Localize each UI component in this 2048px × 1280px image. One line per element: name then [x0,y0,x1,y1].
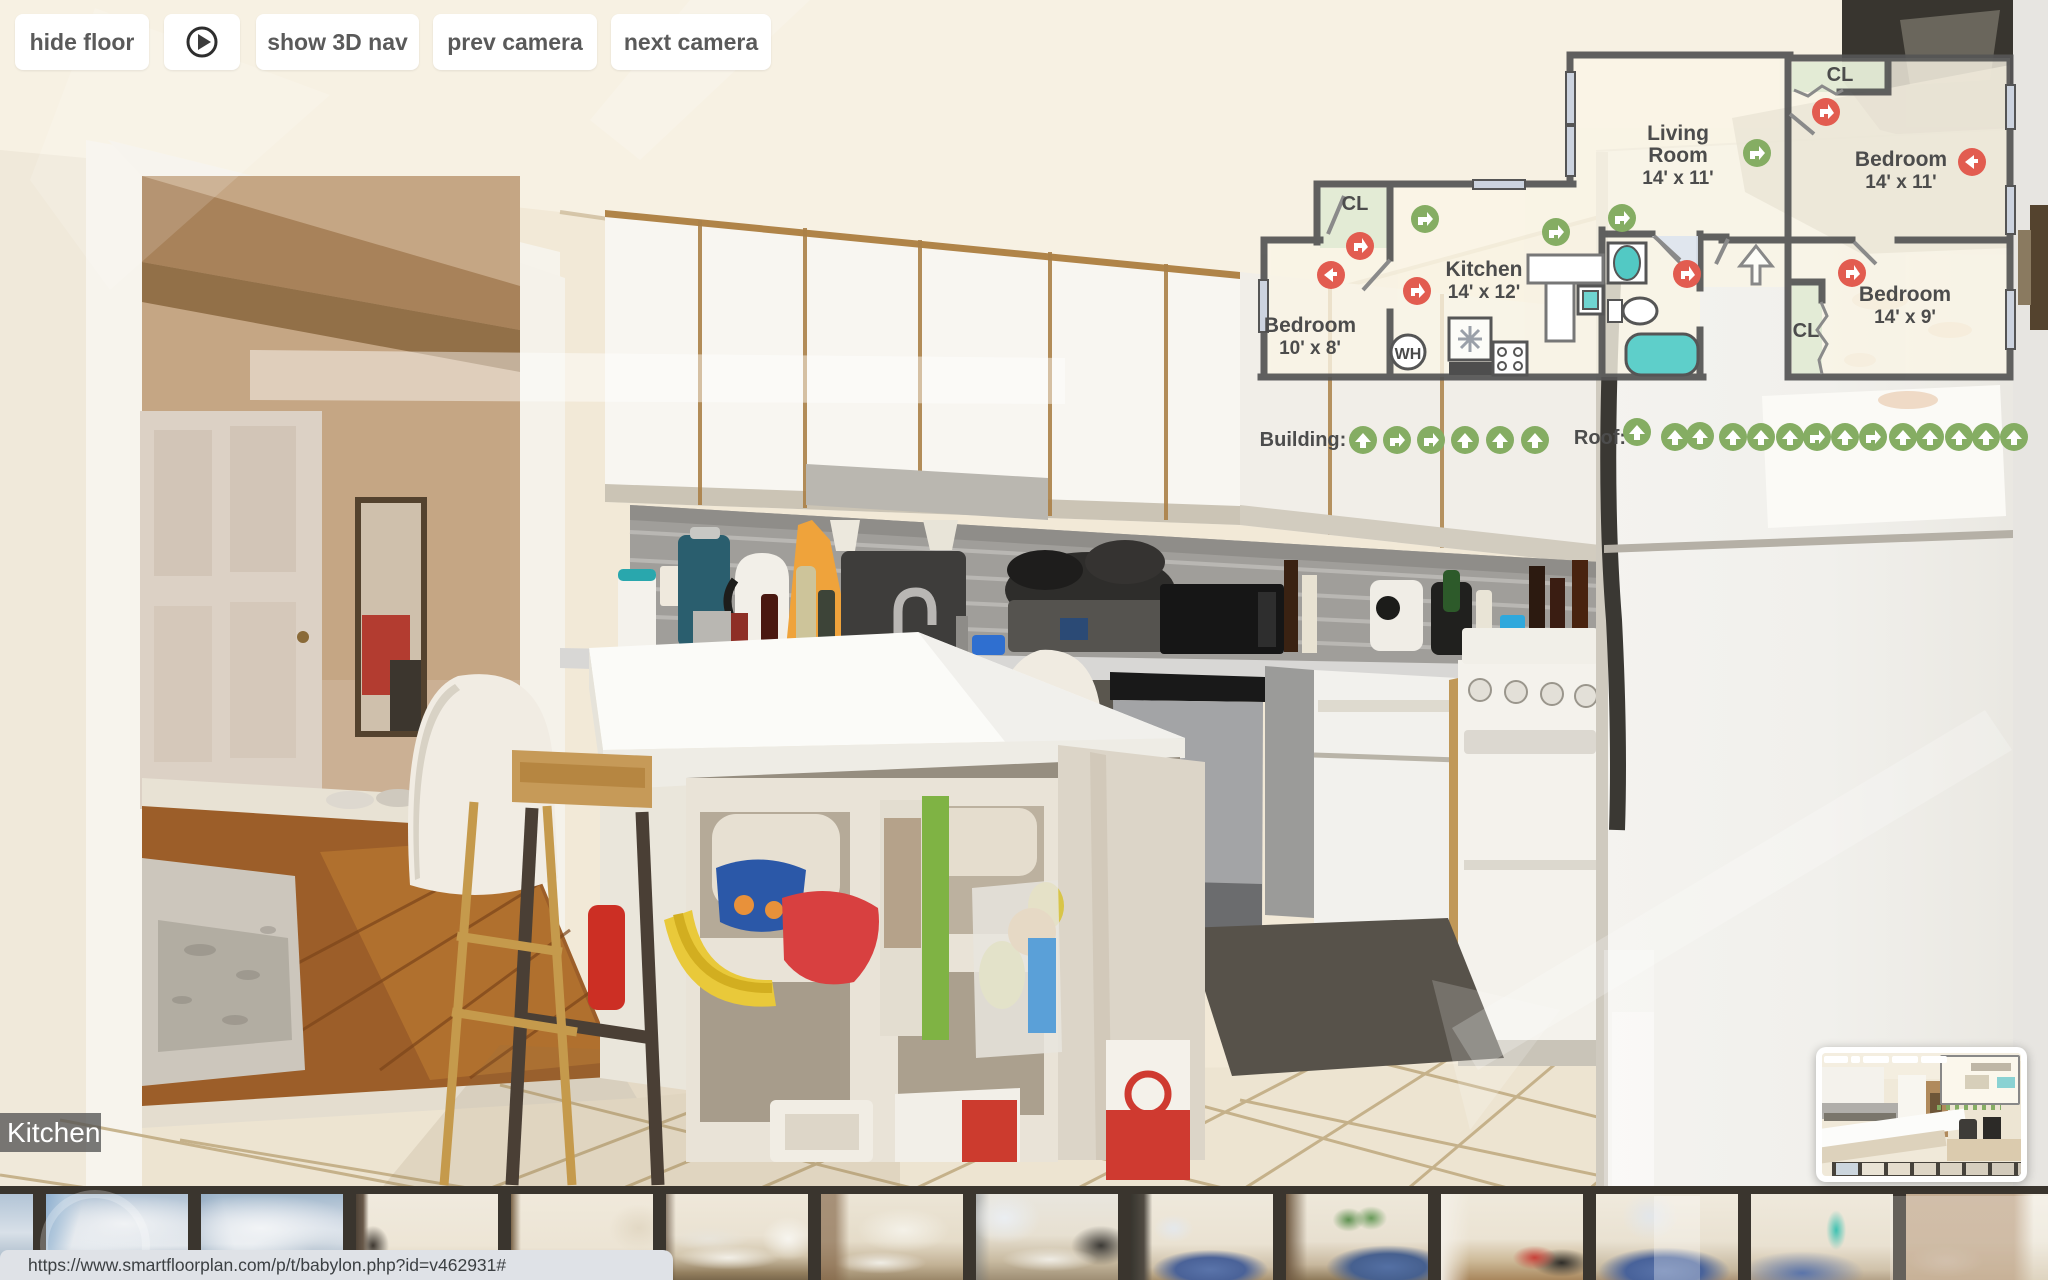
svg-text:CL: CL [1342,193,1369,215]
svg-text:Building:: Building: [1260,429,1347,451]
svg-text:14' x 12': 14' x 12' [1448,282,1520,303]
svg-text:Living: Living [1647,122,1709,145]
svg-text:Kitchen: Kitchen [1445,258,1522,281]
svg-text:10' x 8': 10' x 8' [1279,338,1341,359]
svg-text:14' x 11': 14' x 11' [1865,172,1936,193]
svg-text:Roof:: Roof: [1574,427,1626,449]
svg-text:14' x 9': 14' x 9' [1874,307,1936,328]
svg-text:Bedroom: Bedroom [1855,148,1947,171]
svg-text:Bedroom: Bedroom [1859,283,1951,306]
svg-text:Room: Room [1648,144,1708,167]
svg-text:CL: CL [1827,64,1854,86]
svg-text:Bedroom: Bedroom [1264,314,1356,337]
svg-text:CL: CL [1793,320,1820,342]
svg-text:WH: WH [1395,346,1422,363]
svg-text:14' x 11': 14' x 11' [1642,168,1713,189]
